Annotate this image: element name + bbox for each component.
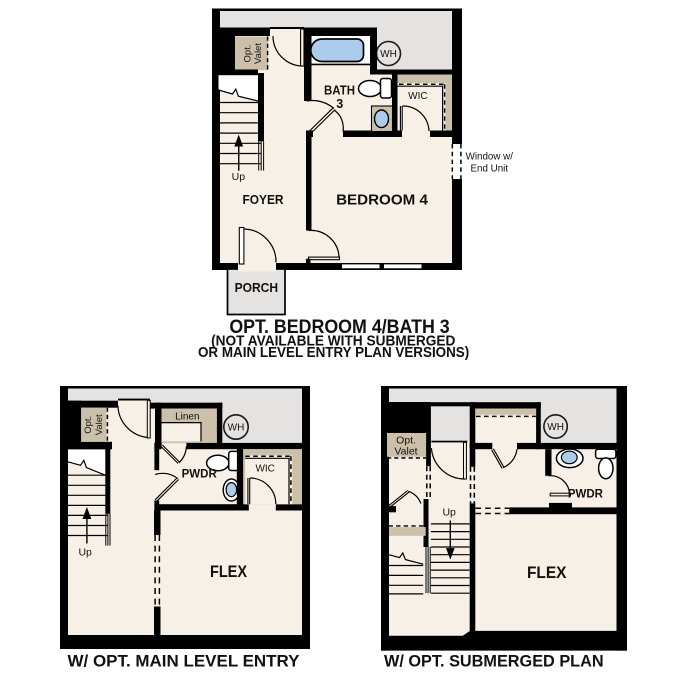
svg-text:OR MAIN LEVEL ENTRY PLAN VERSI: OR MAIN LEVEL ENTRY PLAN VERSIONS) <box>198 344 469 360</box>
svg-text:Linen: Linen <box>175 411 199 422</box>
svg-text:Opt.: Opt. <box>243 45 254 63</box>
svg-text:W/ OPT. SUBMERGED PLAN: W/ OPT. SUBMERGED PLAN <box>384 652 604 670</box>
svg-text:Window w/: Window w/ <box>466 152 514 163</box>
svg-text:WIC: WIC <box>255 463 274 474</box>
svg-text:WH: WH <box>547 422 564 433</box>
svg-text:WH: WH <box>228 423 245 434</box>
svg-text:Opt.: Opt. <box>83 416 94 434</box>
svg-text:PWDR: PWDR <box>182 469 218 481</box>
svg-text:Up: Up <box>78 546 92 558</box>
svg-text:Up: Up <box>442 507 456 519</box>
svg-text:FLEX: FLEX <box>527 565 567 582</box>
svg-text:FLEX: FLEX <box>210 563 248 581</box>
svg-text:End Unit: End Unit <box>471 164 509 175</box>
svg-text:BATH: BATH <box>324 83 355 98</box>
svg-text:W/ OPT. MAIN LEVEL ENTRY: W/ OPT. MAIN LEVEL ENTRY <box>68 652 300 671</box>
svg-text:PWDR: PWDR <box>568 489 604 501</box>
svg-text:Valet: Valet <box>94 414 105 435</box>
svg-text:FOYER: FOYER <box>242 193 283 207</box>
svg-text:Valet: Valet <box>394 446 417 458</box>
svg-text:3: 3 <box>336 97 343 111</box>
svg-text:WIC: WIC <box>408 91 427 102</box>
svg-text:PORCH: PORCH <box>235 281 278 296</box>
svg-text:Valet: Valet <box>253 43 264 64</box>
svg-text:Up: Up <box>232 171 246 183</box>
svg-text:BEDROOM 4: BEDROOM 4 <box>336 191 428 208</box>
svg-text:WH: WH <box>380 49 397 60</box>
